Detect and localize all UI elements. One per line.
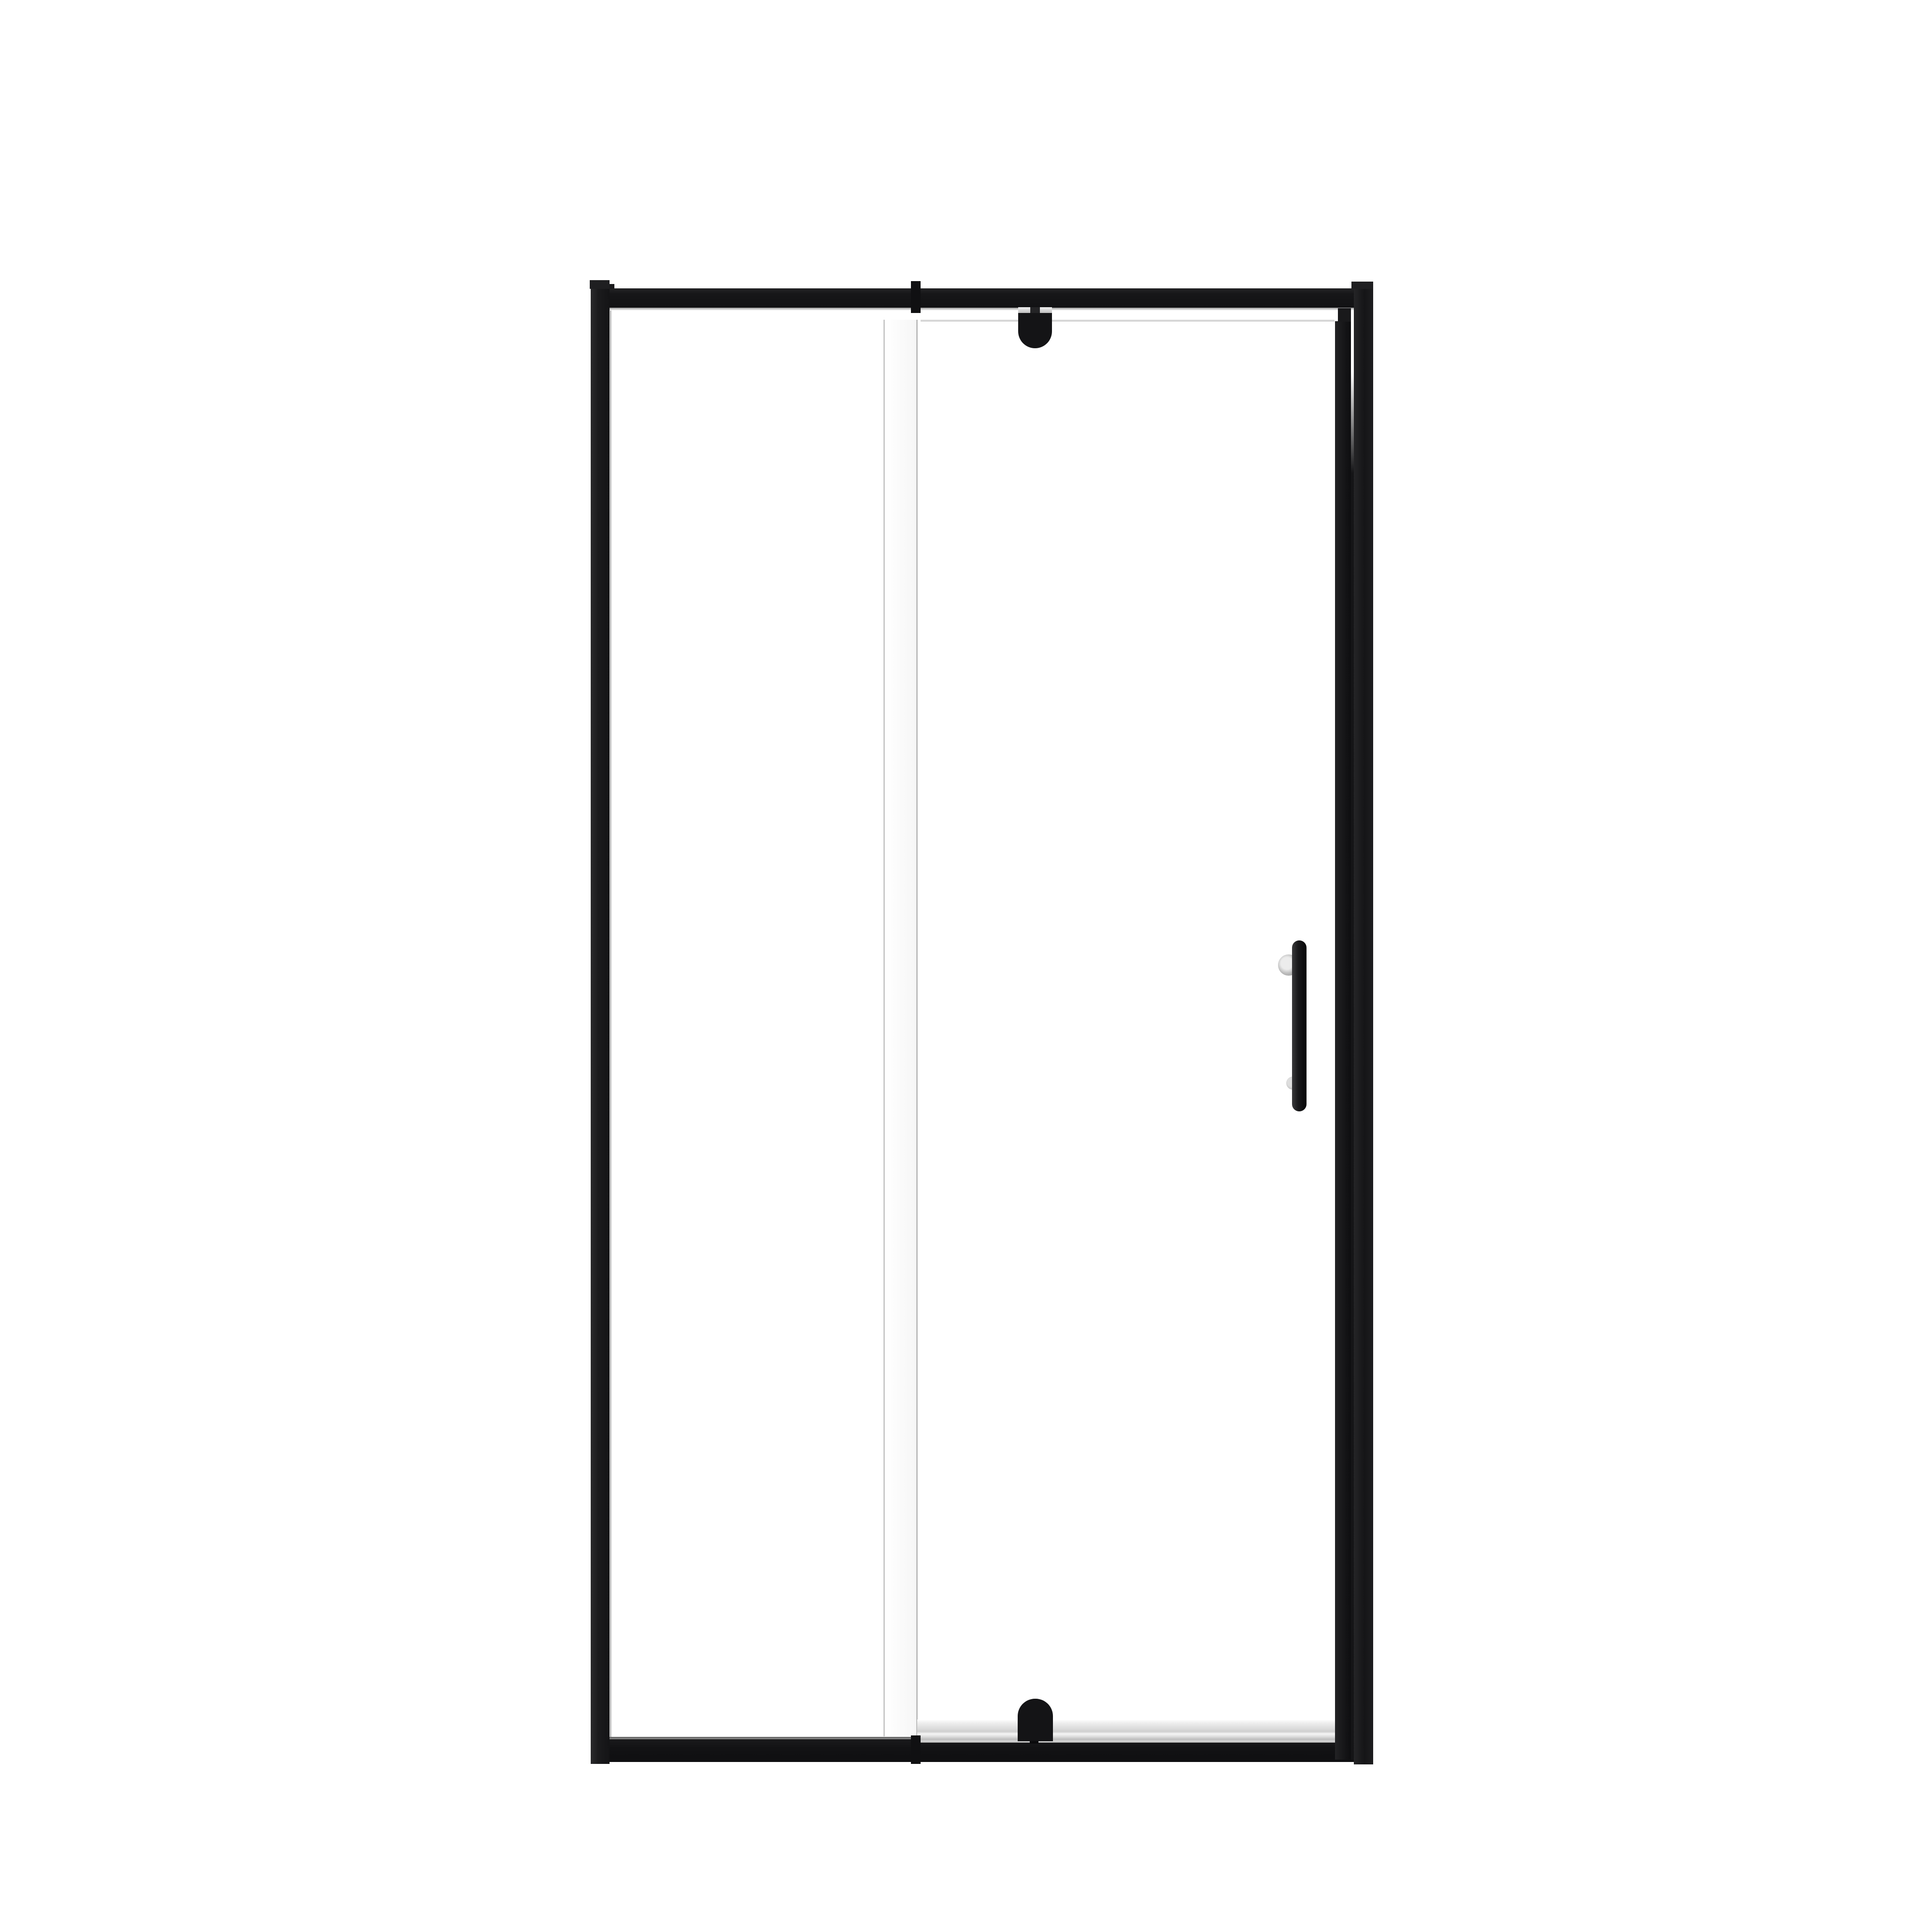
door-stile (1335, 321, 1351, 1760)
door-stile-top-step (1338, 308, 1351, 322)
bottom-rail (610, 1739, 1354, 1762)
right-wall-profile (1354, 289, 1373, 1764)
bottom-rail-seam-line (610, 1737, 917, 1739)
left-cap-step (610, 284, 614, 289)
door-glass-top-edge-line (921, 320, 1335, 322)
top-pivot-bracket (1018, 313, 1052, 348)
glass-edge-highlight-strip (883, 320, 918, 1736)
bottom-rail-junction-block (911, 1735, 921, 1764)
shower-door-product-image (0, 0, 1932, 1932)
header-rail-junction-block (911, 281, 921, 313)
header-rail (610, 288, 1354, 308)
fixed-panel-glass-edge-line (610, 311, 612, 1737)
right-wall-profile-cap (1351, 282, 1373, 289)
bottom-pivot-bracket (1018, 1699, 1053, 1741)
door-handle (1292, 940, 1307, 1111)
header-rail-shadow (610, 308, 1354, 311)
threshold-sill (917, 1719, 1335, 1743)
left-wall-profile (591, 289, 610, 1764)
left-wall-profile-cap (590, 280, 610, 289)
